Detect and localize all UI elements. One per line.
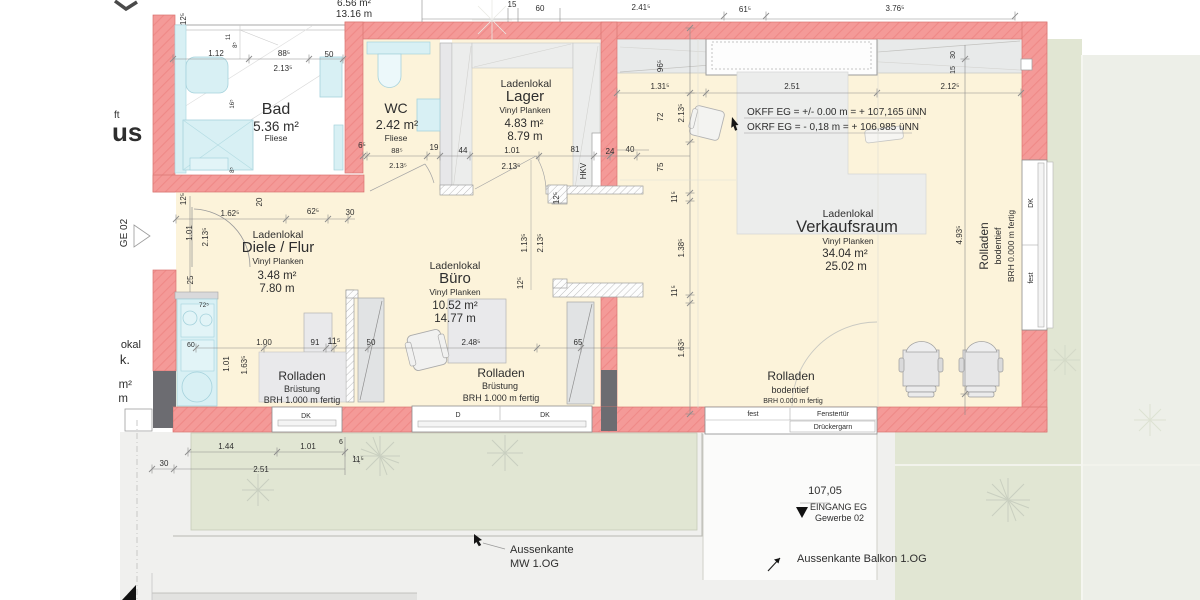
svg-text:11: 11 [226,33,232,40]
svg-text:2.13⁵: 2.13⁵ [502,162,521,171]
svg-text:11⁵: 11⁵ [670,285,679,297]
svg-text:20: 20 [255,197,264,206]
svg-text:DK: DK [1028,198,1035,208]
svg-text:Rolladen: Rolladen [767,369,814,383]
svg-text:fest: fest [747,411,758,418]
svg-text:30: 30 [950,51,957,59]
svg-text:k.: k. [120,352,130,367]
svg-text:1.01: 1.01 [300,442,316,451]
svg-text:Aussenkante Balkon 1.OG: Aussenkante Balkon 1.OG [797,553,927,565]
svg-text:62⁵: 62⁵ [307,207,319,216]
svg-text:m²: m² [119,379,133,391]
svg-text:Rolladen: Rolladen [278,369,325,383]
svg-text:HKV: HKV [579,162,588,179]
svg-text:2.13⁵: 2.13⁵ [274,64,293,73]
svg-text:16⁵: 16⁵ [229,99,236,109]
svg-text:1.62⁵: 1.62⁵ [221,209,240,218]
svg-text:2.42 m²: 2.42 m² [376,118,418,132]
svg-text:15: 15 [950,66,957,74]
svg-text:75: 75 [656,162,665,171]
svg-text:1.63⁵: 1.63⁵ [677,339,686,358]
svg-text:Rolladen: Rolladen [477,366,524,380]
svg-text:Vinyl Planken: Vinyl Planken [252,256,304,266]
svg-text:1.01: 1.01 [504,146,520,155]
svg-text:1.12: 1.12 [208,49,224,58]
svg-text:2.41⁵: 2.41⁵ [632,3,651,12]
svg-text:60: 60 [187,342,195,349]
svg-text:2.48⁵: 2.48⁵ [462,338,481,347]
svg-text:2.12⁵: 2.12⁵ [941,82,960,91]
svg-text:50: 50 [367,338,376,347]
svg-text:Bad: Bad [262,101,290,118]
svg-text:40: 40 [626,145,635,154]
svg-text:BRH 1.000 m fertig: BRH 1.000 m fertig [264,395,341,405]
svg-text:DK: DK [540,412,550,419]
svg-text:44: 44 [459,146,468,155]
svg-text:BRH 1.000 m fertig: BRH 1.000 m fertig [463,393,540,403]
svg-text:25.02 m: 25.02 m [825,261,867,273]
svg-text:4.83 m²: 4.83 m² [505,118,544,130]
svg-text:1.01: 1.01 [222,356,231,372]
svg-text:OKRF EG = - 0,18 m = + 106,985: OKRF EG = - 0,18 m = + 106,985 üNN [747,122,919,133]
svg-text:Fliese: Fliese [385,133,408,143]
svg-text:19: 19 [430,143,439,152]
svg-text:8⁵: 8⁵ [229,167,236,173]
svg-text:BRH 0.000 m fertig: BRH 0.000 m fertig [763,398,823,405]
svg-text:1.63⁵: 1.63⁵ [240,356,249,375]
svg-text:107,05: 107,05 [808,485,842,497]
svg-text:EINGANG EG: EINGANG EG [810,502,867,512]
svg-text:BRH 0.000 m fertig: BRH 0.000 m fertig [1006,210,1016,283]
svg-text:Verkaufsraum: Verkaufsraum [796,218,898,236]
svg-text:15: 15 [508,0,517,9]
svg-text:1.44: 1.44 [218,442,234,451]
svg-text:us: us [112,117,142,147]
svg-text:Diele / Flur: Diele / Flur [242,239,315,256]
svg-text:6: 6 [339,439,343,446]
svg-text:6.56 m²: 6.56 m² [337,0,372,9]
svg-text:Vinyl Planken: Vinyl Planken [822,236,874,246]
svg-text:60: 60 [536,4,545,13]
svg-text:2.51: 2.51 [253,465,269,474]
svg-text:Fliese: Fliese [265,133,288,143]
svg-text:Drückergarn: Drückergarn [814,424,853,431]
svg-text:2.13⁵: 2.13⁵ [201,228,210,247]
svg-text:14.77 m: 14.77 m [434,313,476,325]
svg-text:bodentief: bodentief [993,227,1003,265]
svg-text:4.93⁵: 4.93⁵ [955,226,964,245]
svg-text:Gewerbe 02: Gewerbe 02 [815,513,864,523]
svg-text:12⁵: 12⁵ [516,277,525,289]
svg-text:91: 91 [311,338,320,347]
svg-text:Vinyl Planken: Vinyl Planken [499,105,551,115]
svg-text:GE 02: GE 02 [119,218,130,247]
svg-text:1.00: 1.00 [256,338,272,347]
svg-text:11⁵: 11⁵ [327,336,340,346]
svg-text:fest: fest [1028,272,1035,283]
svg-text:88⁵: 88⁵ [391,146,402,155]
svg-text:1.13⁵: 1.13⁵ [520,234,529,253]
svg-text:2.13⁵: 2.13⁵ [677,104,686,123]
svg-text:MW 1.OG: MW 1.OG [510,558,559,570]
svg-text:WC: WC [384,100,407,116]
svg-text:8⁵: 8⁵ [232,42,239,48]
svg-text:24: 24 [606,147,615,156]
svg-text:34.04 m²: 34.04 m² [822,248,868,260]
svg-text:Brüstung: Brüstung [284,384,320,394]
svg-text:81: 81 [571,145,580,154]
svg-text:50: 50 [325,50,334,59]
svg-text:8.79 m: 8.79 m [507,131,542,143]
svg-text:25: 25 [186,275,195,284]
svg-text:7.80 m: 7.80 m [259,283,294,295]
svg-text:61⁵: 61⁵ [739,5,751,14]
svg-text:DK: DK [301,413,311,420]
svg-text:2.51: 2.51 [784,82,800,91]
svg-text:Fenstertür: Fenstertür [817,411,850,418]
svg-text:72: 72 [656,112,665,121]
svg-text:12⁵: 12⁵ [179,193,188,205]
svg-text:2.13⁵: 2.13⁵ [536,234,545,253]
svg-text:OKFF EG = +/- 0.00 m = + 107,1: OKFF EG = +/- 0.00 m = + 107,165 üNN [747,107,927,118]
svg-text:30: 30 [160,459,169,468]
svg-text:88⁵: 88⁵ [278,49,290,58]
svg-text:10.52 m²: 10.52 m² [432,300,478,312]
svg-text:96⁵: 96⁵ [656,60,665,72]
svg-text:Büro: Büro [439,270,471,287]
svg-text:m: m [118,393,128,405]
svg-text:1.38⁵: 1.38⁵ [677,239,686,258]
svg-text:okal: okal [121,339,141,351]
svg-text:12⁵: 12⁵ [179,13,188,25]
svg-text:1.31⁵: 1.31⁵ [651,82,670,91]
svg-text:2.13⁵: 2.13⁵ [389,161,407,170]
svg-text:5.36 m²: 5.36 m² [253,119,299,134]
svg-text:1.01: 1.01 [185,225,194,241]
svg-text:Brüstung: Brüstung [482,381,518,391]
svg-text:6⁵: 6⁵ [358,141,366,150]
svg-text:12⁵: 12⁵ [552,192,561,204]
svg-text:Aussenkante: Aussenkante [510,544,574,556]
svg-text:D: D [455,412,460,419]
svg-text:bodentief: bodentief [771,385,809,395]
svg-text:Rolladen: Rolladen [977,222,991,269]
svg-text:11⁵: 11⁵ [670,191,679,203]
svg-text:3.48 m²: 3.48 m² [258,270,297,282]
svg-text:Vinyl Planken: Vinyl Planken [429,287,481,297]
svg-text:3.76⁵: 3.76⁵ [886,4,905,13]
svg-text:30: 30 [346,208,355,217]
svg-text:Lager: Lager [506,88,544,105]
svg-text:72⁵: 72⁵ [199,302,209,309]
svg-text:13.16 m: 13.16 m [336,9,372,20]
svg-text:65: 65 [574,338,583,347]
